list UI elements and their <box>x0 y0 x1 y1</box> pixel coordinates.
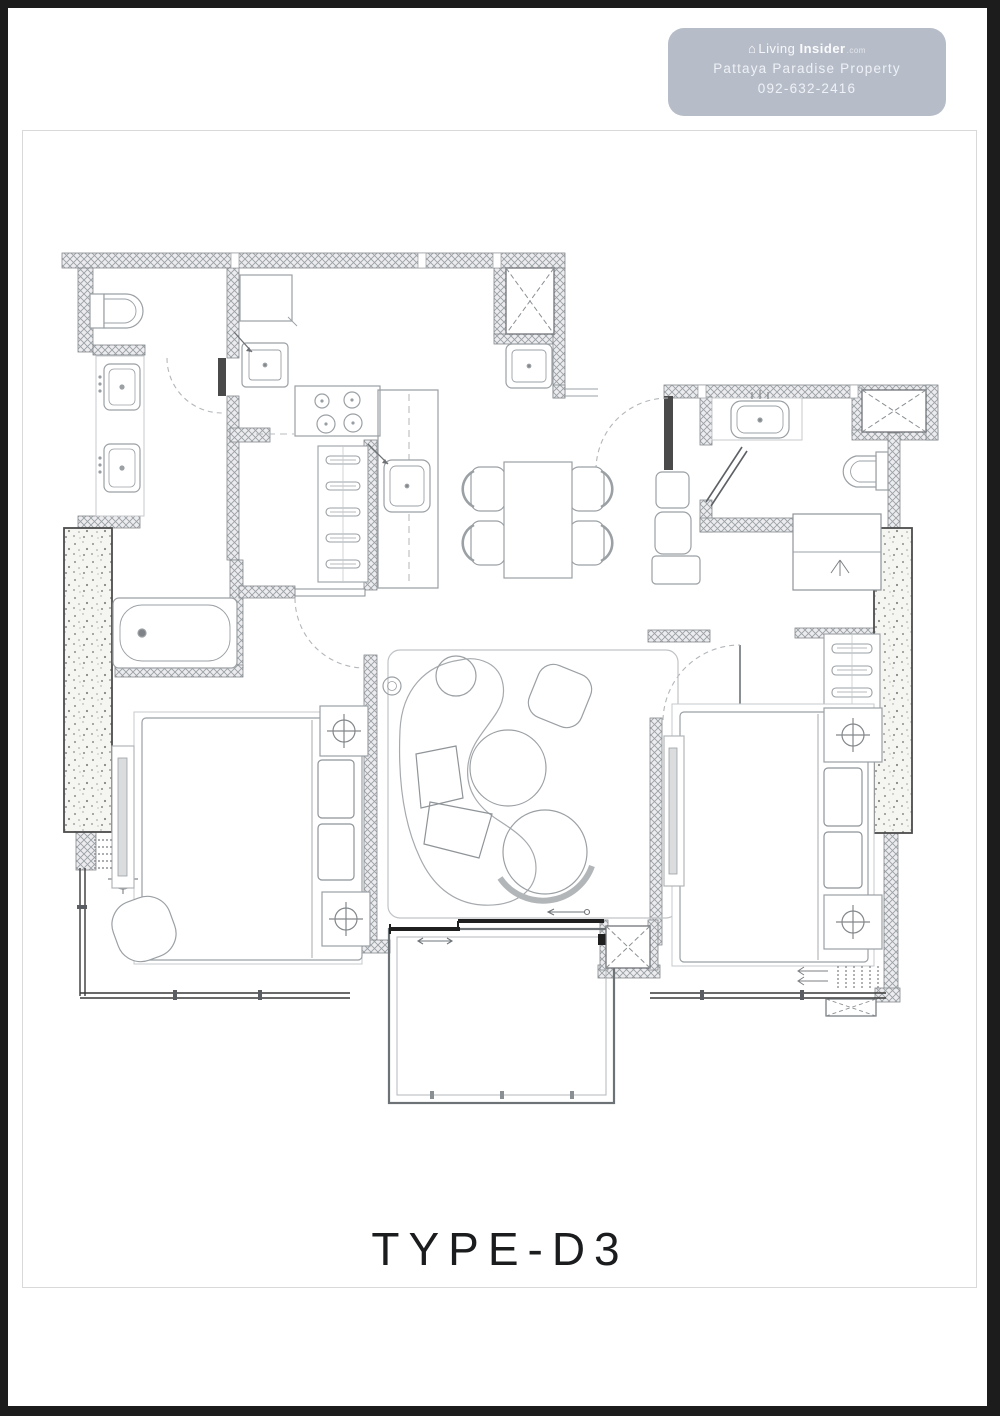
service-shaft <box>506 268 554 388</box>
nightstand <box>320 706 368 756</box>
pillow <box>824 832 862 888</box>
balcony-shaft <box>606 926 650 968</box>
dining-chair <box>570 521 612 565</box>
sink-icon <box>99 364 140 410</box>
balcony-rail-inner <box>397 937 606 1095</box>
sofa-pillow <box>416 746 463 808</box>
entry-door-leaf <box>664 396 673 470</box>
plan-title: TYPE-D3 <box>8 1222 987 1276</box>
upper-cabinet <box>240 275 292 321</box>
toilet-icon <box>843 452 888 490</box>
tv-console <box>112 746 134 888</box>
washer-icon <box>506 344 552 388</box>
balcony <box>389 909 650 1103</box>
pillow <box>824 768 862 826</box>
stove-icon <box>295 386 380 436</box>
ac-flow-arrows <box>798 967 828 985</box>
sofa-pillow <box>424 802 492 858</box>
ac-grille-icon <box>94 840 114 868</box>
curved-sofa <box>400 659 536 905</box>
balcony-rail-outer <box>389 929 614 1103</box>
brand-line: ⌂Living Insider.com <box>668 41 946 56</box>
floor-plan-svg <box>8 8 987 1406</box>
pillow <box>318 824 354 880</box>
bedroom1-door-leaf <box>295 589 365 596</box>
brand-living: Living <box>758 41 795 56</box>
nightstand <box>824 895 882 949</box>
dining-chair <box>463 521 505 565</box>
ac-grille-icon <box>838 966 878 988</box>
watermark-badge: ⌂Living Insider.com Pattaya Paradise Pro… <box>668 28 946 116</box>
paper: ⌂Living Insider.com Pattaya Paradise Pro… <box>8 8 987 1406</box>
bedroom1-door-swing <box>295 598 365 668</box>
bedroom-1 <box>94 706 370 968</box>
bathroom1-door-swing <box>167 358 222 413</box>
entry-door-swing <box>596 398 668 470</box>
page: ⌂Living Insider.com Pattaya Paradise Pro… <box>0 0 1000 1416</box>
dining-set <box>463 462 613 578</box>
pillow <box>318 760 354 818</box>
dining-chair <box>463 467 505 511</box>
toilet-icon <box>90 294 143 328</box>
nightstand <box>322 892 370 946</box>
house-icon: ⌂ <box>748 41 756 56</box>
ac-condenser-unit <box>826 999 876 1016</box>
agency-phone: 092-632-2416 <box>668 81 946 96</box>
tv-console <box>664 736 684 886</box>
armchair <box>524 660 597 733</box>
sliding-door <box>390 921 604 934</box>
entry-cabinets <box>652 472 700 584</box>
pouf <box>436 656 476 696</box>
bathroom2-door-diagonal <box>706 447 747 506</box>
brand-insider: Insider <box>799 41 845 56</box>
bathtub-icon <box>113 598 237 668</box>
dining-table <box>504 462 572 578</box>
armchair <box>500 810 592 901</box>
bathroom1-door-leaf <box>218 358 226 396</box>
bedroom-2 <box>664 704 882 1016</box>
built-in-cabinet <box>793 514 881 590</box>
agency-name: Pattaya Paradise Property <box>668 61 946 76</box>
hall-closet <box>318 446 368 582</box>
kitchen-sink-icon <box>234 332 288 387</box>
side-table <box>383 677 401 695</box>
dining-chair <box>570 467 612 511</box>
nightstand <box>824 708 882 762</box>
living-room <box>383 650 678 918</box>
coffee-table <box>470 730 546 806</box>
slide-direction-arrows <box>418 909 590 944</box>
brand-suffix: .com <box>847 46 866 55</box>
shower-shaft <box>862 390 926 432</box>
sink-icon <box>99 444 140 492</box>
